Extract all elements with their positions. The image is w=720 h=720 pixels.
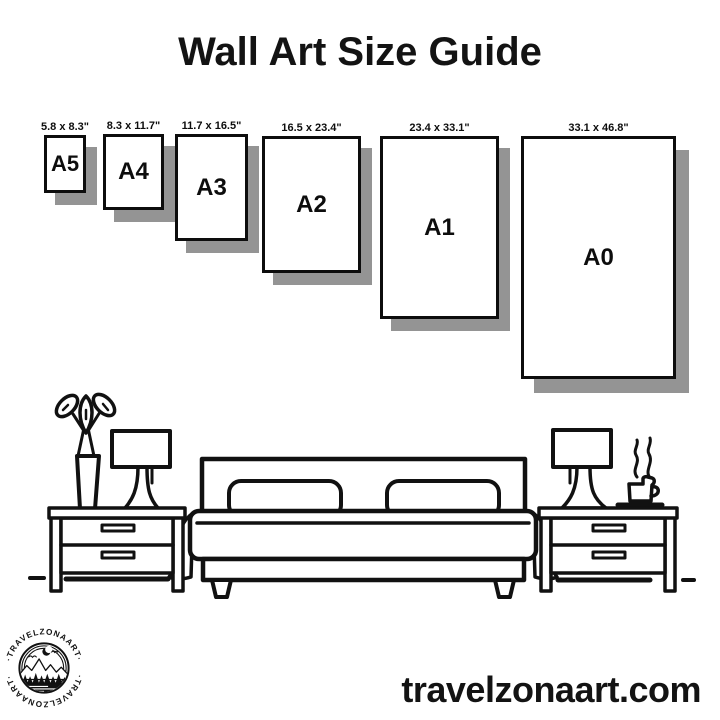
table-lamp-right-icon [553,430,611,508]
bed-base [203,559,524,580]
mattress [190,511,536,559]
bed-leg-left [212,580,231,597]
bedroom-illustration [0,0,720,720]
brand-logo: ·TRAVELZONAART· ·TRAVELZONAART· [3,627,85,709]
bed-leg-right [495,580,514,597]
website-url: travelzonaart.com [401,669,701,711]
bed-icon [169,459,557,597]
plant-vase-icon [53,391,119,509]
nightstand-right-icon [539,508,677,591]
nightstand-left-icon [49,508,185,591]
coffee-cup-icon [618,438,662,505]
table-lamp-left-icon [112,431,170,508]
